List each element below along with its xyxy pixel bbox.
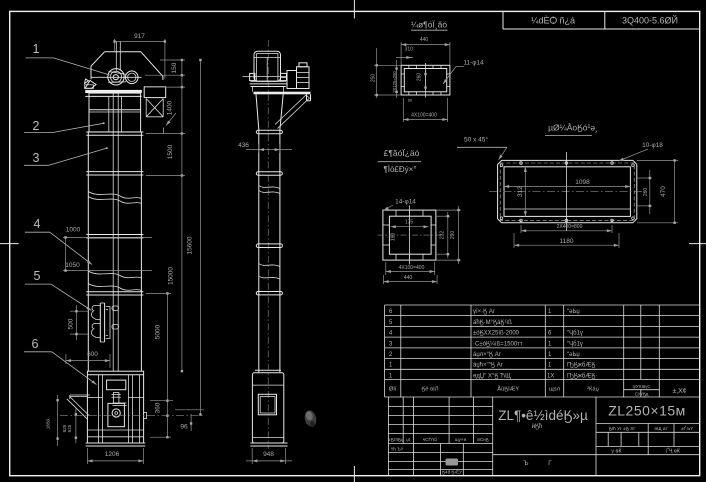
svg-text:600: 600 <box>87 351 98 358</box>
svg-text:290: 290 <box>450 231 456 240</box>
svg-text:áџл×°Ӄ Аг: áџл×°Ӄ Аг <box>473 352 502 358</box>
svg-text:3Q400-5.6ØЙ: 3Q400-5.6ØЙ <box>622 15 678 26</box>
svg-text:312: 312 <box>517 186 524 197</box>
svg-text:360: 360 <box>155 402 162 413</box>
svg-text:I: I <box>162 127 164 136</box>
svg-text:10-φ18: 10-φ18 <box>642 142 663 149</box>
svg-text:ҦӃжбÆӃ·: ҦӃжбÆӃ· <box>567 363 597 369</box>
svg-text:үї×·Ӄ Аг: үї×·Ӄ Аг <box>473 309 496 315</box>
svg-text:1X: 1X <box>547 373 554 379</box>
svg-text:5: 5 <box>34 269 41 283</box>
svg-text:ӀүУXӀвүС: ӀүУXӀвүС <box>632 384 650 389</box>
svg-text:948: 948 <box>263 451 274 458</box>
svg-text:ӥСнӃ: ӥСнӃ <box>477 437 489 442</box>
svg-text:15600: 15600 <box>187 236 194 254</box>
svg-text:2X400=800: 2X400=800 <box>557 224 583 230</box>
svg-text:2: 2 <box>33 119 40 133</box>
svg-text:ү ѳЌ: ү ѳЌ <box>611 448 622 455</box>
svg-text:¶Ìò£Ðý×°: ¶Ìò£Ðý×° <box>383 165 416 174</box>
svg-text:440: 440 <box>404 275 413 281</box>
svg-text:1400: 1400 <box>167 100 174 115</box>
svg-text:ÃûӃІÆҮ: ÃûӃІÆҮ <box>497 386 519 393</box>
svg-text:ҐҶ ѳЌ: ҐҶ ѳЌ <box>666 447 681 455</box>
svg-text:96: 96 <box>180 424 188 431</box>
svg-text:470: 470 <box>660 186 667 197</box>
svg-text:ӃІћ Уг ±Ӄ Хґ: ӃІћ Уг ±Ӄ Хґ <box>609 425 636 432</box>
svg-text:3: 3 <box>33 151 40 165</box>
svg-text:1000: 1000 <box>66 227 81 234</box>
svg-text:ѳдЏʺ Х°Ӄ ЋЩ: ѳдЏʺ Х°Ӄ ЋЩ <box>473 372 511 379</box>
svg-text:190: 190 <box>391 233 397 242</box>
svg-text:440: 440 <box>420 37 429 43</box>
svg-text:250: 250 <box>371 74 377 83</box>
svg-text:175: 175 <box>405 220 414 226</box>
svg-text:260: 260 <box>643 188 649 197</box>
svg-text:15000: 15000 <box>168 267 175 285</box>
svg-text:ʺҶб1ү: ʺҶб1ү <box>567 340 583 347</box>
svg-text:џӀ: џӀ <box>406 437 410 442</box>
svg-text:4X100=400: 4X100=400 <box>399 265 425 271</box>
svg-text:Ӄ4ð ӃÆУ: Ӄ4ð ӃÆУ <box>442 469 462 475</box>
svg-text:ʺәЬџ: ʺәЬџ <box>567 351 580 358</box>
svg-text:1206: 1206 <box>105 451 120 458</box>
svg-text:50 x 45°: 50 x 45° <box>464 136 488 144</box>
svg-text:ҹСЃґЄі: ҹСЃґЄі <box>423 436 437 442</box>
svg-text:Ъ: Ъ <box>523 460 528 467</box>
svg-text:1180: 1180 <box>560 238 574 245</box>
svg-text:1098: 1098 <box>575 179 590 186</box>
svg-text:4X100=400: 4X100=400 <box>411 113 437 119</box>
svg-text:ZL¶•ê½ìdéӃ»µ: ZL¶•ê½ìdéӃ»µ <box>498 408 588 423</box>
svg-text:ӥӃћ: ӥӃћ <box>532 424 543 430</box>
svg-text:Ӄё вӀЛ: Ӄё вӀЛ <box>421 387 438 393</box>
svg-text:525: 525 <box>67 424 72 432</box>
svg-text:µØ¼ÅοӃó¹ә¸: µØ¼ÅοӃó¹ә¸ <box>548 123 598 133</box>
svg-text:·C±óӃ¼ìß=1500тт: ·C±óӃ¼ìß=1500тт <box>473 341 523 347</box>
svg-text:ZL250×15м: ZL250×15м <box>608 403 686 419</box>
svg-text:ØӀї: ØӀї <box>389 387 397 393</box>
svg-text:436: 436 <box>238 142 249 149</box>
svg-text:5000: 5000 <box>155 324 162 339</box>
svg-text:310: 310 <box>405 47 414 53</box>
svg-text:60: 60 <box>408 98 413 103</box>
svg-text:ҦӃжбÆӃ·: ҦӃжбÆӃ· <box>567 373 597 379</box>
svg-text:ѳЩ аґ: ѳЩ аґ <box>654 425 667 432</box>
svg-text:±óӃXX25ìß-2000: ±óӃXX25ìß-2000 <box>473 331 520 337</box>
svg-text:1650: 1650 <box>46 418 51 429</box>
svg-text:£¶ӑóÏ¿ӓó: £¶ӑóÏ¿ӓó <box>384 148 420 158</box>
svg-text:150: 150 <box>171 62 178 73</box>
svg-text:1500: 1500 <box>167 144 174 159</box>
svg-text:4: 4 <box>34 217 41 231</box>
svg-text:260: 260 <box>417 73 423 82</box>
svg-text:Үћ ЪҮ: Үћ ЪҮ <box>391 447 404 452</box>
svg-text:áџћ×ʺ°Ӄ Аг: áџћ×ʺ°Ӄ Аг <box>473 362 504 369</box>
svg-text:1: 1 <box>33 42 40 56</box>
svg-text:±,X¢: ±,X¢ <box>672 388 686 395</box>
svg-text:1050: 1050 <box>65 262 80 269</box>
svg-text:щѕл: щѕл <box>549 387 560 393</box>
svg-text:¼ø¶óÏ¸ӑó: ¼ø¶óÏ¸ӑó <box>411 20 447 30</box>
svg-text:щү×ѳ: щү×ѳ <box>455 437 467 442</box>
svg-text:11-φ14: 11-φ14 <box>463 60 484 67</box>
svg-text:Г: Г <box>548 460 552 467</box>
svg-text:500: 500 <box>68 318 75 329</box>
svg-text:±ӃЛІӃџ: ±ӃЛІӃџ <box>388 437 404 442</box>
svg-text:917: 917 <box>134 33 145 40</box>
svg-text:2X125=250: 2X125=250 <box>392 71 397 93</box>
svg-text:ʺҶб1ү: ʺҶб1ү <box>567 330 583 337</box>
svg-text:6: 6 <box>32 337 39 351</box>
svg-text:СУҮӃд: СУҮӃд <box>635 392 649 397</box>
svg-text:¼dÈѺ ñ¿á: ¼dÈѺ ñ¿á <box>531 16 575 26</box>
svg-text:232: 232 <box>440 231 446 240</box>
svg-text:14-φ14: 14-φ14 <box>395 199 416 206</box>
svg-text:²Ќáџ: ²Ќáџ <box>587 386 599 393</box>
svg-text:áћӃ·M°ӃáӃ¹ìß: áћӃ·M°ӃáӃ¹ìß <box>473 320 512 326</box>
svg-text:ʺәЬџ: ʺәЬџ <box>567 308 580 315</box>
